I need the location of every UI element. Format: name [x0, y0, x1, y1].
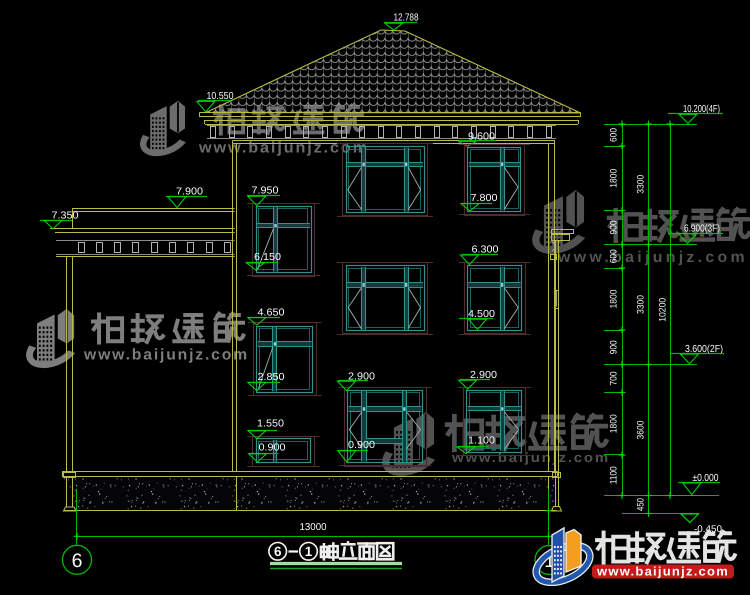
svg-text:1: 1 [305, 544, 313, 559]
svg-text:7.800: 7.800 [471, 193, 498, 204]
svg-text:700: 700 [609, 372, 620, 386]
svg-text:1.550: 1.550 [257, 418, 284, 429]
svg-text:6.150: 6.150 [254, 252, 281, 263]
svg-text:3300: 3300 [636, 175, 647, 194]
svg-text:1100: 1100 [609, 466, 620, 484]
svg-text:2.850: 2.850 [258, 372, 285, 383]
svg-text:12.788: 12.788 [394, 12, 419, 23]
svg-text:450: 450 [636, 498, 647, 511]
svg-text:10200: 10200 [658, 298, 669, 322]
svg-text:6: 6 [72, 550, 83, 572]
svg-text:4.650: 4.650 [258, 307, 285, 318]
svg-text:0.900: 0.900 [348, 440, 375, 451]
svg-text:0.900: 0.900 [259, 443, 286, 454]
svg-text:600: 600 [609, 249, 620, 263]
svg-text:13000: 13000 [300, 522, 327, 533]
svg-text:www.baijunjz.com: www.baijunjz.com [83, 347, 249, 364]
svg-text:900: 900 [609, 340, 620, 354]
svg-text:6.900(3F): 6.900(3F) [684, 223, 720, 234]
svg-text:7.900: 7.900 [176, 186, 203, 197]
svg-text:3300: 3300 [636, 295, 647, 314]
svg-text:600: 600 [609, 128, 620, 142]
svg-text:www.baijunjz.com: www.baijunjz.com [557, 249, 748, 266]
svg-text:7.350: 7.350 [52, 210, 79, 221]
svg-text:900: 900 [609, 221, 620, 235]
svg-text:1.100: 1.100 [468, 435, 495, 446]
svg-text:1800: 1800 [609, 169, 620, 188]
svg-text:6: 6 [274, 544, 282, 559]
svg-text:1800: 1800 [609, 414, 620, 433]
svg-text:3600: 3600 [636, 421, 647, 440]
svg-text:1800: 1800 [609, 290, 620, 309]
svg-text:www.baijunjz.com: www.baijunjz.com [596, 564, 729, 578]
svg-text:www.baijunjz.com: www.baijunjz.com [198, 140, 369, 157]
